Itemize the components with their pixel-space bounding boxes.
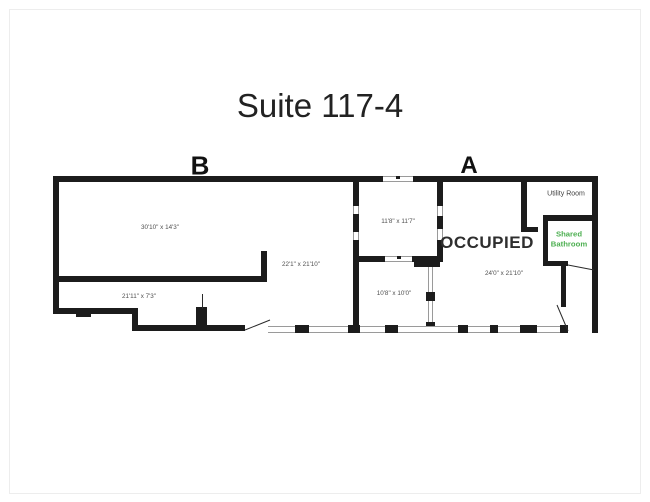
wall-b-stub bbox=[261, 251, 267, 282]
wall-b-divider bbox=[53, 276, 267, 282]
utility-room-label: Utility Room bbox=[547, 190, 585, 198]
occupied-status-label: OCCUPIED bbox=[440, 233, 534, 253]
wall-room-right bbox=[437, 216, 443, 229]
strip-mullion bbox=[490, 325, 498, 333]
window-room-right bbox=[437, 206, 443, 216]
wall-mid-vertical bbox=[353, 214, 359, 232]
page-title: Suite 117-4 bbox=[237, 87, 403, 125]
wall-bathroom-top bbox=[543, 215, 597, 221]
room-dimension-small-upper: 11'8" x 11'7" bbox=[381, 218, 415, 225]
wall-mid-vertical bbox=[353, 176, 359, 206]
room-dimension-occupied: 24'0" x 21'10" bbox=[485, 270, 523, 277]
strip-mullion bbox=[458, 325, 468, 333]
strip-mullion bbox=[385, 325, 398, 333]
wall-utility-left bbox=[521, 176, 527, 232]
room-dimension-b-main: 30'10" x 14'3" bbox=[141, 224, 179, 231]
wall-right bbox=[592, 176, 598, 333]
floor-plan-page: Suite 117-4 B A bbox=[0, 0, 650, 502]
window-mid-wall bbox=[353, 206, 359, 214]
wall-mid-vertical bbox=[353, 240, 359, 331]
wall-bottom-lower bbox=[132, 325, 245, 331]
window-mullion bbox=[396, 176, 400, 179]
wall-pillar bbox=[196, 307, 207, 331]
room-dimension-open-area: 22'1" x 21'10" bbox=[282, 261, 320, 268]
partition-mullion bbox=[426, 292, 435, 301]
room-dimension-b-lower: 21'11" x 7'3" bbox=[122, 293, 156, 300]
wall-threshold-block bbox=[76, 308, 91, 317]
wall-top-left-segment bbox=[53, 176, 383, 182]
wall-left bbox=[53, 176, 59, 314]
strip-mullion bbox=[560, 325, 568, 333]
wall-bathroom-stub bbox=[561, 266, 566, 307]
wall-room-right bbox=[437, 176, 443, 206]
wall-partition-stub bbox=[414, 261, 440, 267]
strip-mullion bbox=[348, 325, 360, 333]
shared-bathroom-label: Shared Bathroom bbox=[545, 230, 594, 249]
wall-utility-stub bbox=[521, 227, 538, 232]
strip-mullion bbox=[295, 325, 309, 333]
wall-bottom-upper bbox=[53, 308, 137, 314]
window-mullion bbox=[397, 256, 401, 259]
wall-room-bottom bbox=[353, 256, 385, 262]
strip-mullion bbox=[520, 325, 537, 333]
room-dimension-small-lower: 10'8" x 10'0" bbox=[377, 290, 412, 297]
window-mid-wall bbox=[353, 232, 359, 240]
